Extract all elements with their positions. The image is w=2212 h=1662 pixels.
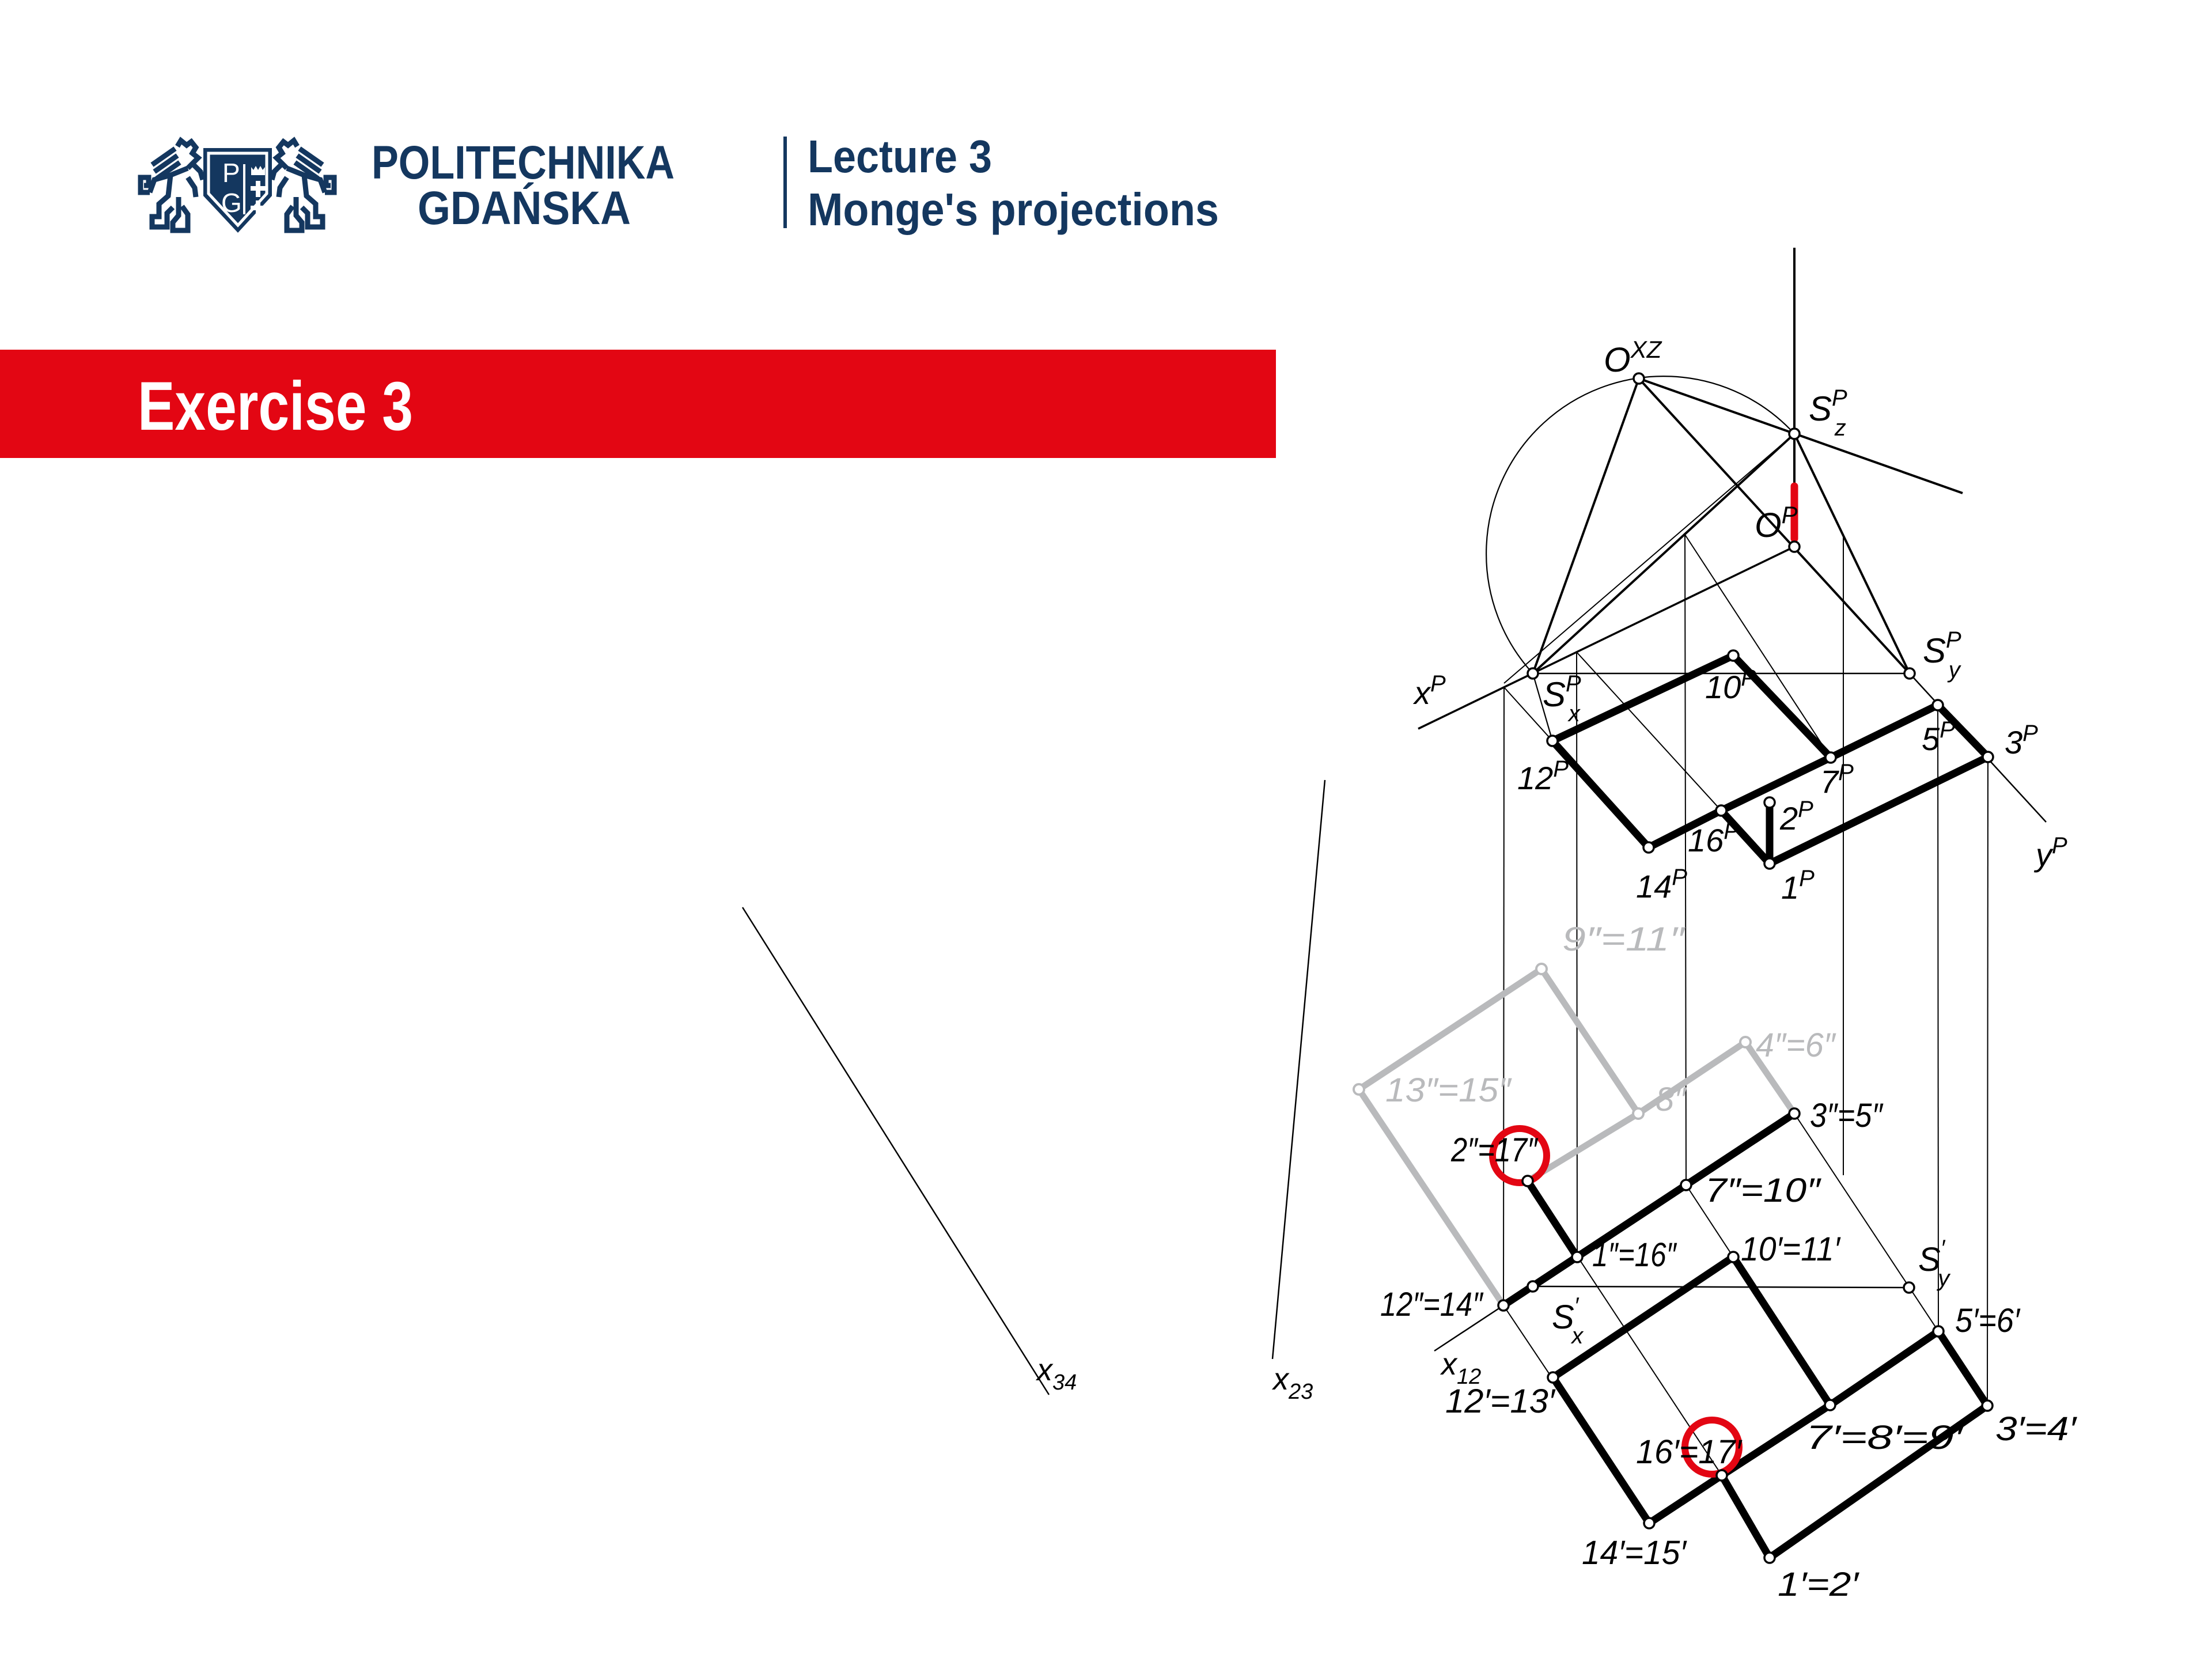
svg-text:9″=11″: 9″=11″ <box>1562 921 1686 958</box>
svg-text:8″: 8″ <box>1656 1081 1687 1118</box>
svg-text:3′=4′: 3′=4′ <box>1995 1410 2077 1448</box>
svg-text:13″=15″: 13″=15″ <box>1385 1072 1513 1109</box>
svg-text:G: G <box>221 188 242 218</box>
svg-text:POLITECHNIKA: POLITECHNIKA <box>372 137 675 189</box>
svg-text:P: P <box>222 158 240 188</box>
svg-text:2″=17″: 2″=17″ <box>1450 1131 1539 1169</box>
svg-text:12″=14″: 12″=14″ <box>1380 1286 1484 1323</box>
svg-text:1″=16″: 1″=16″ <box>1592 1236 1677 1274</box>
svg-text:16′=17′: 16′=17′ <box>1636 1433 1743 1471</box>
svg-text:14′=15′: 14′=15′ <box>1582 1534 1687 1572</box>
svg-text:Lecture 3: Lecture 3 <box>808 131 992 182</box>
svg-text:Monge's projections: Monge's projections <box>808 184 1219 235</box>
svg-text:GDAŃSKA: GDAŃSKA <box>418 182 631 234</box>
svg-text:5′=6′: 5′=6′ <box>1955 1302 2021 1339</box>
svg-text:10′=11′: 10′=11′ <box>1741 1231 1841 1268</box>
svg-text:1′=2′: 1′=2′ <box>1778 1566 1859 1603</box>
svg-text:4″=6″: 4″=6″ <box>1756 1027 1836 1064</box>
svg-text:12′=13′: 12′=13′ <box>1445 1383 1556 1420</box>
svg-text:Exercise 3: Exercise 3 <box>138 368 413 445</box>
svg-text:7″=10″: 7″=10″ <box>1705 1172 1822 1209</box>
svg-text:7′=8′=9′: 7′=8′=9′ <box>1806 1419 1964 1456</box>
svg-text:3″=5″: 3″=5″ <box>1810 1097 1884 1134</box>
